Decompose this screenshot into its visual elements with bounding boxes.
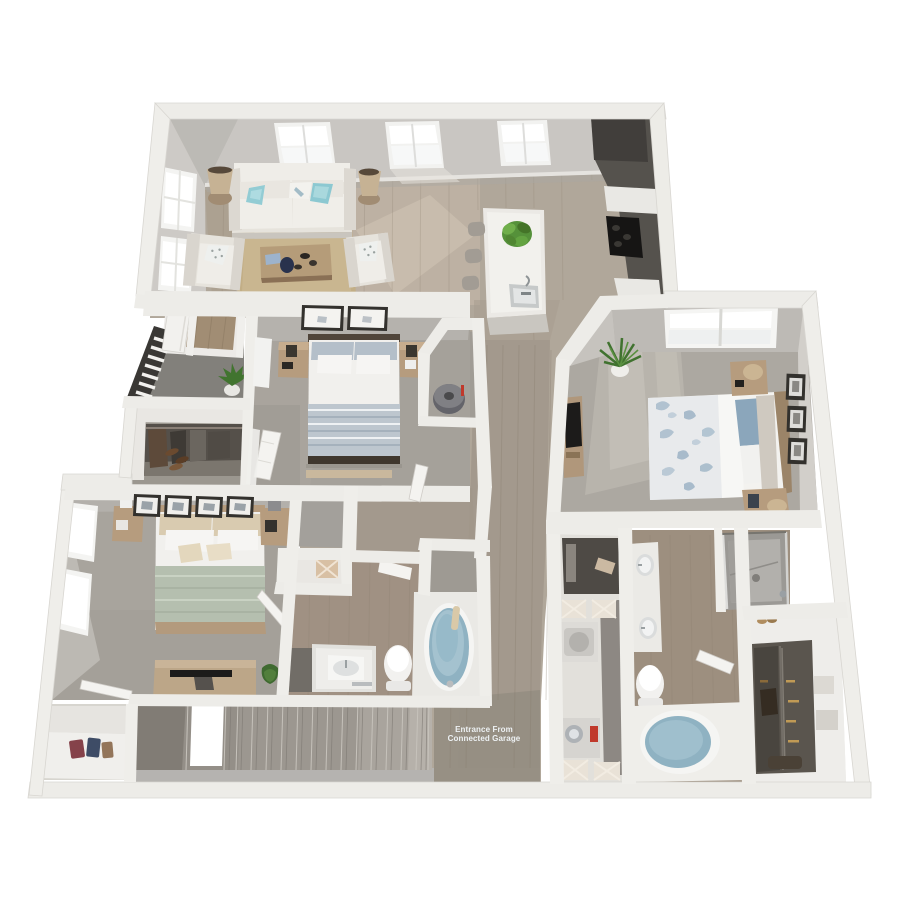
svg-text:Entrance From: Entrance From xyxy=(455,725,513,734)
svg-text:Connected Garage: Connected Garage xyxy=(448,734,521,743)
